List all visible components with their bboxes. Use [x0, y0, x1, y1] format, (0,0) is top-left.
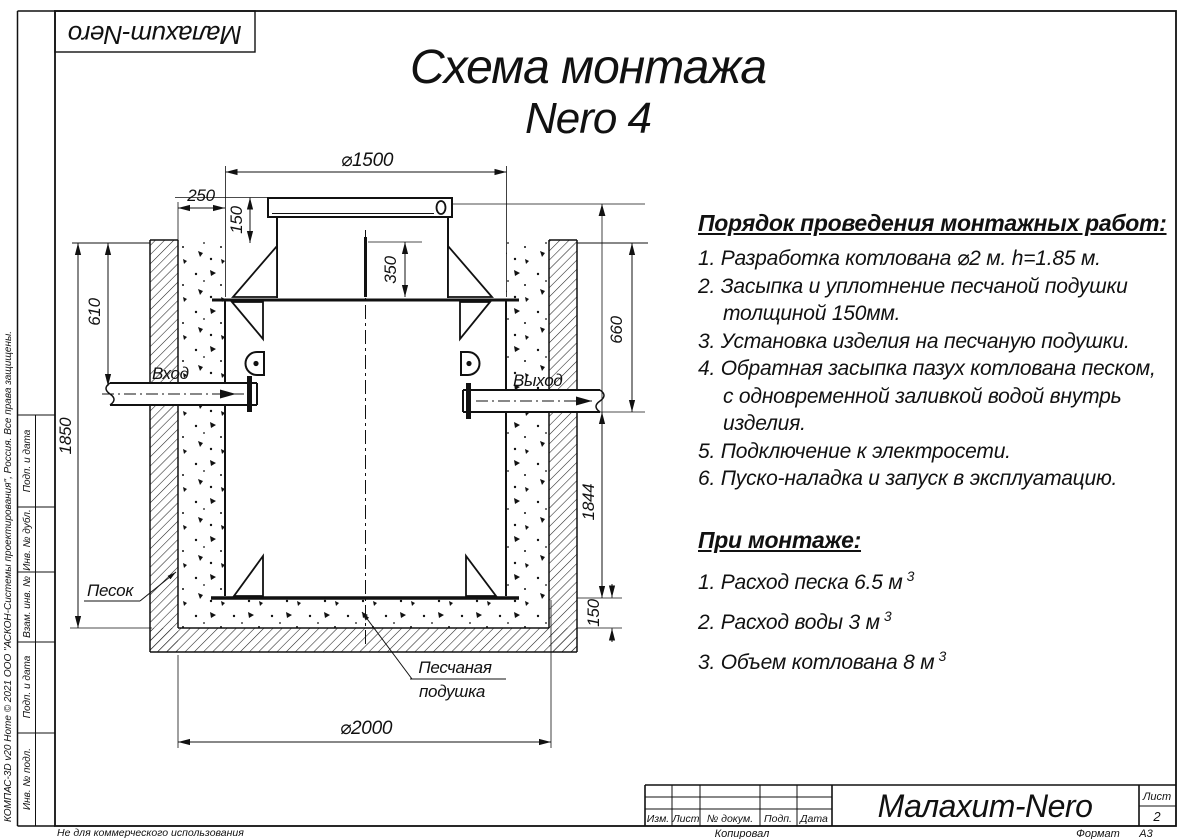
side-cell-4: Подп. и дата	[22, 655, 33, 718]
dim-350: 350	[381, 255, 400, 283]
dim-1500: ⌀1500	[341, 150, 394, 171]
montage-heading: При монтаже:	[698, 527, 1174, 554]
instruction-item: 3. Установка изделия на песчаную подушки…	[698, 328, 1174, 356]
side-cell-5: Инв. № подл.	[22, 748, 33, 810]
tb-col-doc: № докум.	[707, 813, 753, 825]
installation-instructions: Порядок проведения монтажных работ: 1. Р…	[698, 210, 1174, 688]
tb-col-data: Дата	[799, 813, 828, 825]
instruction-item: 4. Обратная засыпка пазух котлована песк…	[698, 355, 1174, 383]
instruction-item: 1. Разработка котлована ⌀2 м. h=1.85 м.	[698, 245, 1174, 273]
tank-body	[211, 198, 519, 648]
corner-stamp-text: Малахит-Nero	[68, 20, 241, 50]
tb-copied: Копировал	[715, 828, 770, 839]
tank-lid	[268, 198, 452, 217]
montage-item: 2. Расход воды 3 м3	[698, 608, 1174, 648]
dim-150-bottom: 150	[584, 598, 603, 626]
cushion-label-line1: Песчаная	[418, 658, 491, 677]
gusset-bottom-left	[234, 556, 263, 596]
montage-item: 1. Расход песка 6.5 м3	[698, 568, 1174, 608]
instruction-item-cont: с одновременной заливкой водой внутрь	[698, 383, 1174, 411]
dim-660: 660	[607, 315, 626, 343]
tb-format-label: Формат	[1076, 828, 1120, 839]
montage-item-sup: 3	[884, 608, 892, 624]
tb-format-value: А3	[1138, 828, 1153, 839]
lid-vent	[437, 201, 446, 214]
cushion-label-line2: подушка	[419, 682, 485, 701]
instruction-item: 5. Подключение к электросети.	[698, 438, 1174, 466]
montage-item-sup: 3	[938, 648, 946, 664]
dim-1844: 1844	[579, 484, 598, 521]
dim-250: 250	[186, 186, 215, 205]
instruction-item-cont: толщиной 150мм.	[698, 300, 1174, 328]
sand-label: Песок	[87, 581, 134, 600]
side-cell-3: Взам. инв. №	[22, 576, 33, 638]
inlet-label: Вход	[152, 364, 189, 383]
tb-sheet-number: 2	[1152, 809, 1161, 824]
sand-backfill	[178, 240, 549, 628]
dim-150-top: 150	[227, 205, 246, 233]
gusset-top-left	[233, 246, 277, 297]
outlet-label: Выход	[513, 371, 563, 390]
instruction-item: 6. Пуско-наладка и запуск в эксплуатацию…	[698, 465, 1174, 493]
dim-610: 610	[85, 297, 104, 325]
tb-col-izm: Изм.	[647, 813, 669, 825]
montage-item-text: 3. Объем котлована 8 м	[698, 651, 934, 674]
gusset-top-right	[448, 246, 492, 297]
compas-copyright: КОМПАС-3D v20 Home © 2021 ООО "АСКОН-Сис…	[3, 331, 14, 822]
montage-item-text: 1. Расход песка 6.5 м	[698, 571, 903, 594]
instruction-item: 2. Засыпка и уплотнение песчаной подушки	[698, 273, 1174, 301]
dim-2000: ⌀2000	[340, 718, 393, 739]
instructions-heading: Порядок проведения монтажных работ:	[698, 210, 1174, 237]
instruction-item-cont: изделия.	[698, 410, 1174, 438]
montage-item-sup: 3	[907, 568, 915, 584]
tb-col-list: Лист	[671, 813, 699, 825]
gusset-bottom-right	[466, 556, 496, 596]
tb-sheet-label: Лист	[1142, 791, 1171, 803]
drawing-title-line1: Схема монтажа	[410, 41, 766, 94]
side-cell-1: Подп. и дата	[22, 429, 33, 492]
side-cell-2: Инв. № дубл.	[21, 509, 33, 571]
drawing-title-line2: Nero 4	[525, 94, 651, 143]
montage-item-text: 2. Расход воды 3 м	[698, 611, 880, 634]
gusset-under-flange-left	[232, 302, 263, 339]
gusset-under-flange-right	[460, 302, 490, 339]
dim-1850: 1850	[56, 417, 75, 454]
tb-product-name: Малахит-Nero	[878, 788, 1093, 824]
tb-col-podp: Подп.	[764, 813, 792, 825]
drawing-sheet: Малахит-Nero Схема монтажа Nero 4	[0, 0, 1182, 839]
non-commercial-note: Не для коммерческого использования	[57, 827, 244, 839]
montage-item: 3. Объем котлована 8 м3	[698, 648, 1174, 688]
sand-cushion	[178, 598, 549, 628]
